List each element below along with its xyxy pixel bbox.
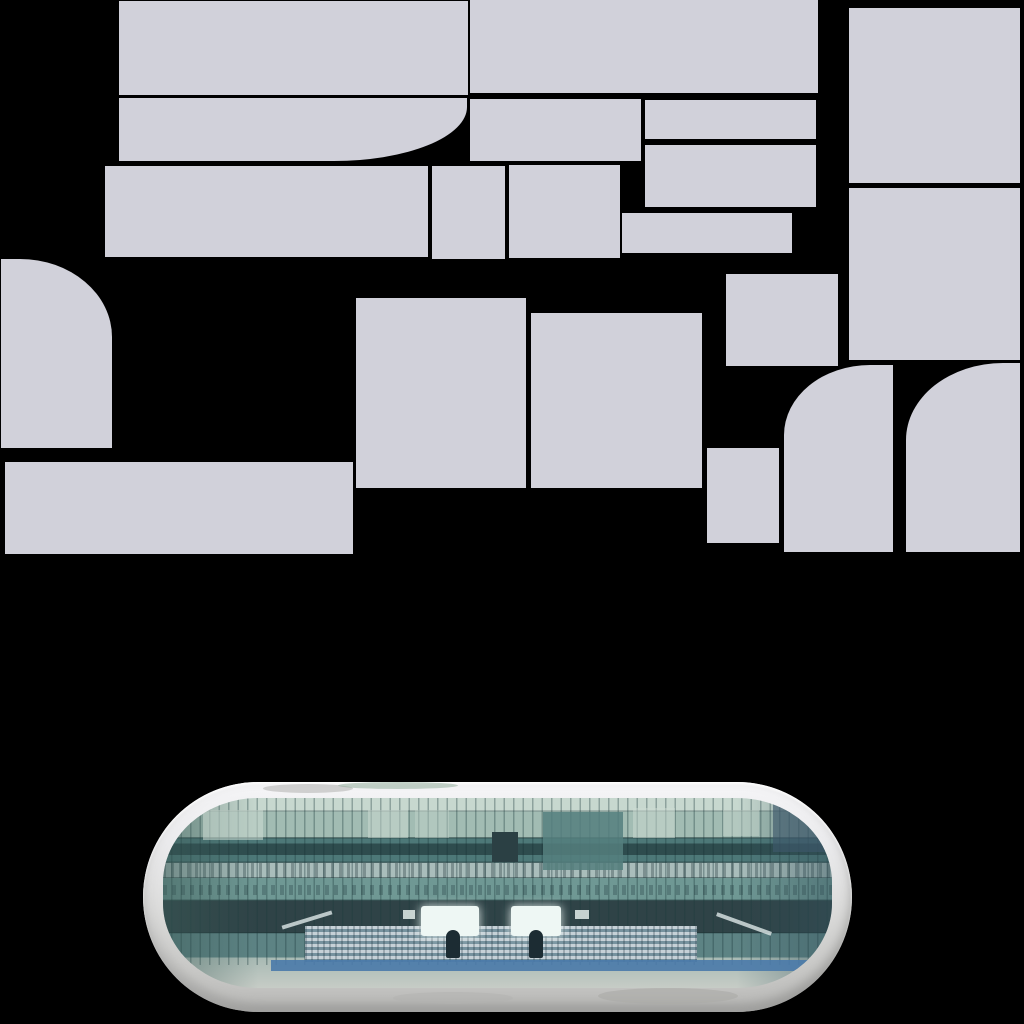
panel-row2-c xyxy=(645,145,816,207)
panel-row3-a xyxy=(105,166,428,257)
stripe-blue xyxy=(271,960,827,971)
screen-fragment xyxy=(575,910,589,919)
panel-row2-a xyxy=(470,99,641,161)
window-speck-row xyxy=(163,863,832,878)
panel-small-tall xyxy=(707,448,779,543)
panel-corner-topleft-b xyxy=(906,363,1020,552)
slate-block xyxy=(773,804,825,852)
glass-patch xyxy=(415,810,449,838)
screen-fragment xyxy=(403,910,415,919)
glass-patch xyxy=(368,810,408,838)
panel-row2-b xyxy=(645,100,816,139)
panel-top-right xyxy=(470,0,818,93)
panel-top-left xyxy=(119,1,468,95)
panel-swoosh xyxy=(119,98,467,161)
panel-row3-d xyxy=(622,213,792,253)
glass-patch xyxy=(633,808,675,838)
panel-mid-b xyxy=(531,313,702,488)
panel-bottom-strip xyxy=(5,462,353,554)
figure-left xyxy=(446,930,460,958)
frame-smudge-green xyxy=(338,782,458,789)
doorway-dark xyxy=(492,832,518,862)
frame-smudge-bottom xyxy=(393,992,513,1004)
panel-corner-topleft-a xyxy=(784,365,893,552)
rearview-mirror xyxy=(143,782,852,1012)
mirror-photo xyxy=(163,798,832,988)
panel-row3-b xyxy=(432,166,505,259)
grandstand-seats xyxy=(305,926,697,962)
panel-row3-c xyxy=(509,165,620,258)
glass-patch xyxy=(723,810,759,836)
glass-patch xyxy=(203,810,263,840)
teal-block xyxy=(543,812,623,870)
frame-smudge-bottom xyxy=(598,988,738,1004)
panel-mid-small xyxy=(726,274,838,366)
panel-side-upper xyxy=(849,8,1020,183)
panel-corner-topright xyxy=(1,259,112,448)
figure-right xyxy=(529,930,543,958)
panel-side-lower xyxy=(849,188,1020,360)
window-speck-row xyxy=(163,885,832,895)
panel-mid-a xyxy=(356,298,526,488)
